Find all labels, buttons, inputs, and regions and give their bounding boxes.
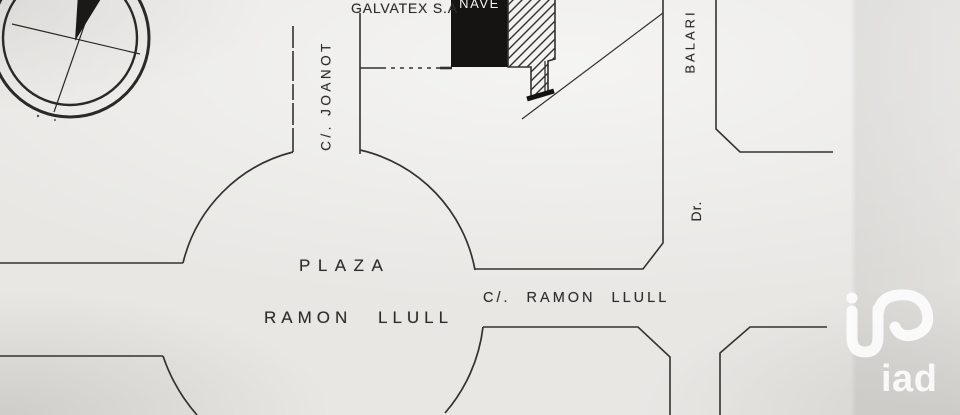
label-galvatex: GALVATEX S.A: [351, 0, 458, 16]
label-street-dr: Dr.: [688, 191, 704, 231]
compass-needle: [75, 0, 104, 41]
iad-logo-icon: [843, 288, 943, 358]
label-plaza-line2: RAMON LLULL: [264, 308, 453, 328]
street-ramon-llull-lines: [483, 327, 827, 415]
label-street-balari: BALARI: [683, 0, 698, 86]
plaza-roundabout-arcs: [163, 150, 483, 415]
map-linework: [0, 0, 960, 415]
iad-wordmark: iad: [881, 358, 937, 401]
label-street-joanot: C/. JOANOT: [319, 36, 334, 156]
iad-watermark: iad: [843, 288, 943, 398]
street-west-lines: [0, 263, 183, 356]
map-photo: GALVATEX S.A NAVE C/. JOANOT BALARI Dr. …: [0, 0, 960, 415]
label-plaza-line1: PLAZA: [299, 256, 390, 276]
label-street-ramon-llull: C/. RAMON LLULL: [483, 290, 669, 306]
label-nave: NAVE: [451, 0, 508, 11]
hatched-lot: [508, 0, 555, 99]
compass-rose-icon: [0, 0, 149, 121]
